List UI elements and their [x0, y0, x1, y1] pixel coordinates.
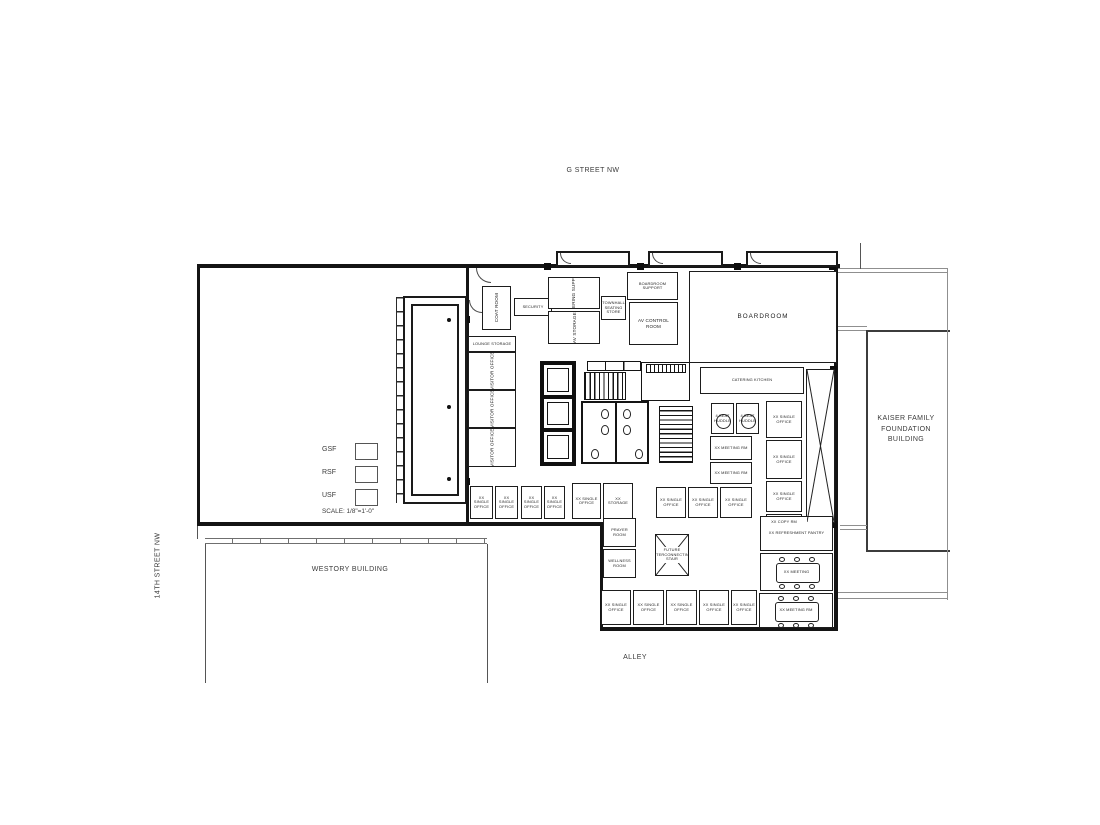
boardroom: BOARDROOM [689, 271, 837, 363]
room-label: XX SINGLE OFFICE [545, 495, 564, 510]
catering-kitchen: CATERING KITCHEN [700, 367, 804, 394]
prayer-room: PRAYER ROOM [603, 518, 636, 547]
room-label: WELLNESS ROOM [604, 558, 635, 569]
lounge-storage: LOUNGE STORAGE [468, 336, 516, 352]
catering-support: CATERING SUPPORT [548, 277, 600, 309]
room-label: PRAYER ROOM [604, 527, 635, 538]
room-label: XX SINGLE OFFICE [767, 414, 801, 425]
room-label: VISITOR OFFICE [488, 390, 495, 428]
future-shaft [806, 369, 835, 523]
single-office: XX SINGLE OFFICE [544, 486, 565, 519]
room-label: XX SINGLE OFFICE [471, 495, 492, 510]
single-office: XX SINGLE OFFICE [766, 440, 802, 479]
room-label: XX SINGLE OFFICE [522, 495, 541, 510]
room-label: COAT ROOM [493, 292, 500, 323]
meeting-room: XX MEETING RM [710, 462, 752, 484]
single-office: XX SINGLE OFFICE [572, 483, 601, 519]
security-desk: SECURITY [514, 298, 552, 316]
boardroom-support: BOARDROOM SUPPORT [627, 272, 678, 300]
single-office: XX SINGLE OFFICE [766, 481, 802, 512]
room-label: XX SINGLE OFFICE [689, 497, 717, 508]
room-label: XX SINGLE OFFICE [700, 602, 728, 613]
single-office: XX SINGLE OFFICE [495, 486, 518, 519]
future-stair: FUTURE INTERCONNECTING STAIR [655, 534, 689, 576]
seating-store: TOWNHALL SEATING STORE [601, 296, 626, 320]
room-label: SECURITY [522, 304, 545, 310]
single-office: XX SINGLE OFFICE [633, 590, 664, 625]
single-office: XX SINGLE OFFICE [688, 487, 718, 518]
room-label: XX SINGLE OFFICE [573, 496, 600, 507]
room-label: XX MEETING RM [713, 445, 748, 451]
storage-room: XX STORAGE [603, 483, 633, 519]
single-office: XX SINGLE OFFICE [521, 486, 542, 519]
room-label: TOWNHALL SEATING STORE [601, 300, 626, 315]
room-label: XX COPY RM [770, 519, 798, 525]
av-control-room: AV CONTROL ROOM [629, 302, 678, 345]
room-label: XX SINGLE OFFICE [496, 495, 517, 510]
room-label: AV CONTROL ROOM [630, 317, 677, 330]
room-label: XX MEETING RM [778, 607, 813, 613]
wellness-room: WELLNESS ROOM [603, 549, 636, 578]
visitor-office: VISITOR OFFICE [468, 390, 516, 428]
room-label: XX SINGLE OFFICE [732, 602, 756, 613]
visitor-office: VISITOR OFFICE [468, 352, 516, 390]
room-label: XX SINGLE OFFICE [767, 454, 801, 465]
room-label: BOARDROOM [737, 312, 790, 321]
room-label: 4 SEAT HUDDLE [737, 413, 758, 424]
cross-hatch [807, 370, 834, 522]
av-storage: AV STORAGE [548, 311, 600, 344]
room-label: FUTURE INTERCONNECTING STAIR [655, 547, 689, 562]
single-office: XX SINGLE OFFICE [470, 486, 493, 519]
room-label: XX SINGLE OFFICE [657, 497, 685, 508]
room-label: XX MEETING RM [713, 470, 748, 476]
room-label: LOUNGE STORAGE [472, 341, 513, 347]
meeting-room: XX MEETING RM [759, 593, 833, 628]
single-office: XX SINGLE OFFICE [766, 401, 802, 438]
room-label: XX STORAGE [604, 496, 632, 507]
huddle-room: 4 SEAT HUDDLE [711, 403, 734, 434]
room-label: VISITOR OFFICE [488, 428, 495, 467]
room-label: 4 SEAT HUDDLE [712, 413, 733, 424]
single-office: XX SINGLE OFFICE [601, 590, 631, 625]
room-label: VISITOR OFFICE [488, 352, 495, 390]
room-label: XX SINGLE OFFICE [602, 602, 630, 613]
room-label: XX SINGLE OFFICE [767, 491, 801, 502]
single-office: XX SINGLE OFFICE [731, 590, 757, 625]
room-label: BOARDROOM SUPPORT [628, 281, 677, 292]
room-label: XX MEETING [783, 569, 811, 575]
floor-plan-canvas: G STREET NW 14TH STREET NW WESTORY BUILD… [0, 0, 1100, 825]
room-label: XX SINGLE OFFICE [667, 602, 696, 613]
visitor-office: VISITOR OFFICE [468, 428, 516, 467]
meeting-room: XX MEETING RM [710, 436, 752, 460]
meeting-room: XX MEETING [760, 553, 833, 591]
room-label: CATERING SUPPORT [570, 277, 577, 309]
room-label: CATERING KITCHEN [731, 377, 773, 383]
single-office: XX SINGLE OFFICE [656, 487, 686, 518]
room-label: XX SINGLE OFFICE [634, 602, 663, 613]
huddle-room: 4 SEAT HUDDLE [736, 403, 759, 434]
single-office: XX SINGLE OFFICE [720, 487, 752, 518]
single-office: XX SINGLE OFFICE [699, 590, 729, 625]
single-office: XX SINGLE OFFICE [666, 590, 697, 625]
room-label: XX SINGLE OFFICE [721, 497, 751, 508]
room-label: XX REFRESHMENT PANTRY [768, 530, 825, 536]
room-label: AV STORAGE [570, 311, 577, 344]
coat-room: COAT ROOM [482, 286, 511, 330]
rooms-layer: COAT ROOMSECURITYCATERING SUPPORTAV STOR… [0, 0, 1100, 825]
